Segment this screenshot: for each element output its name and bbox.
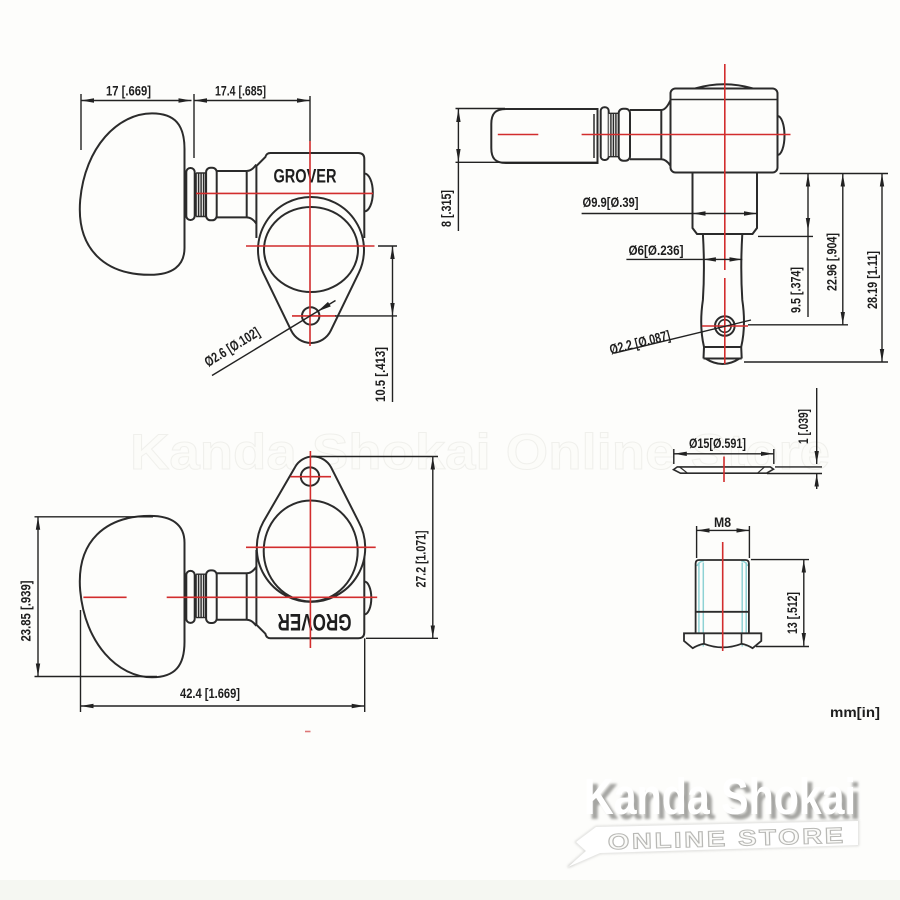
svg-text:Kanda Shokai: Kanda Shokai bbox=[584, 768, 856, 825]
svg-text:8 [.315]: 8 [.315] bbox=[438, 190, 454, 227]
svg-text:mm[in]: mm[in] bbox=[830, 704, 880, 720]
svg-text:28.19 [1.11]: 28.19 [1.11] bbox=[864, 251, 880, 309]
svg-text:Ø6[Ø.236]: Ø6[Ø.236] bbox=[629, 242, 684, 258]
svg-text:Ø15[Ø.591]: Ø15[Ø.591] bbox=[689, 435, 746, 451]
svg-text:17 [.669]: 17 [.669] bbox=[106, 83, 151, 99]
svg-text:13 [.512]: 13 [.512] bbox=[784, 592, 800, 634]
svg-text:GROVER: GROVER bbox=[278, 608, 352, 635]
svg-text:GROVER: GROVER bbox=[274, 166, 337, 188]
svg-text:1 [.039]: 1 [.039] bbox=[795, 409, 811, 444]
svg-text:9.5 [.374]: 9.5 [.374] bbox=[788, 267, 804, 313]
svg-text:10.5 [.413]: 10.5 [.413] bbox=[372, 347, 388, 402]
svg-text:17.4 [.685]: 17.4 [.685] bbox=[215, 83, 266, 99]
svg-text:27.2 [1.071]: 27.2 [1.071] bbox=[413, 531, 429, 588]
svg-text:M8: M8 bbox=[714, 514, 731, 530]
svg-text:23.85 [.939]: 23.85 [.939] bbox=[18, 581, 34, 642]
svg-text:Ø9.9[Ø.39]: Ø9.9[Ø.39] bbox=[583, 194, 639, 210]
svg-text:22.96 [.904]: 22.96 [.904] bbox=[824, 233, 840, 291]
svg-text:42.4 [1.669]: 42.4 [1.669] bbox=[180, 685, 240, 701]
